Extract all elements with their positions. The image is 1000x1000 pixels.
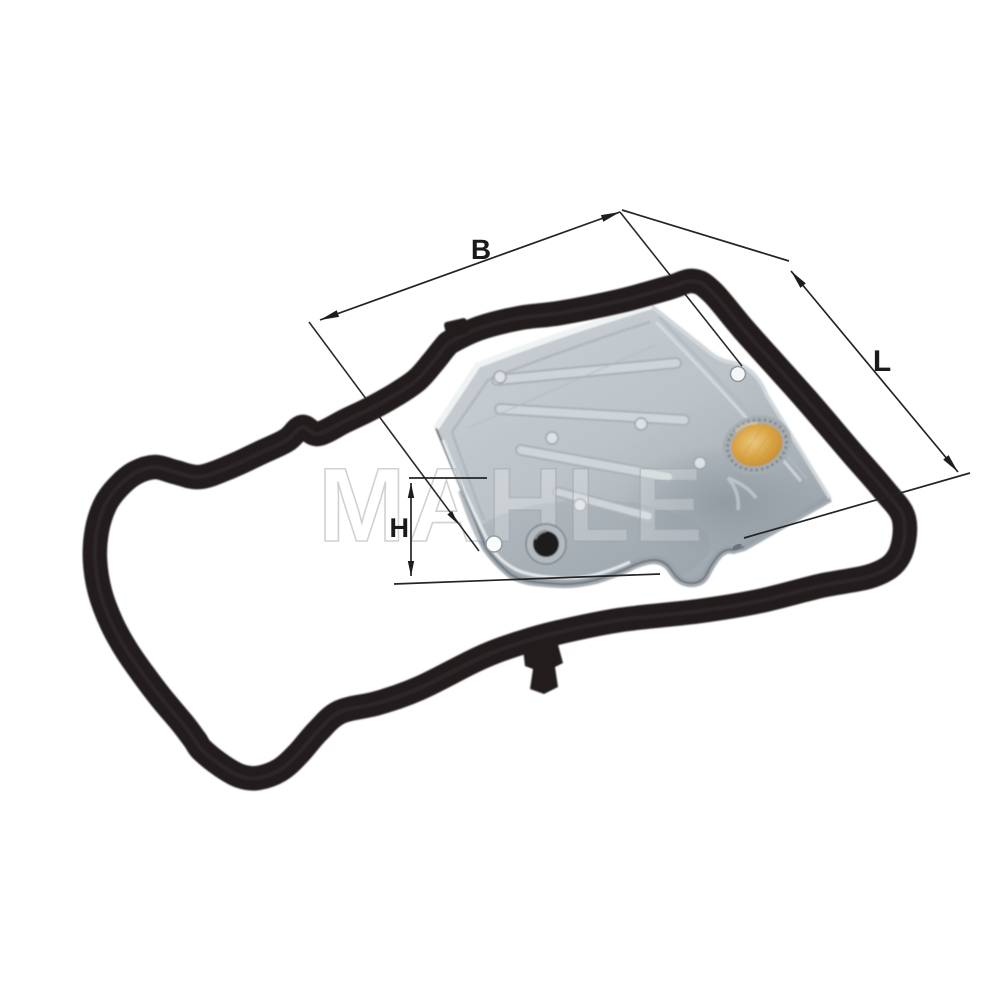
svg-text:L: L [873,345,891,378]
svg-text:H: H [390,513,410,543]
svg-text:MAHLE: MAHLE [318,447,706,564]
svg-text:B: B [471,234,491,265]
